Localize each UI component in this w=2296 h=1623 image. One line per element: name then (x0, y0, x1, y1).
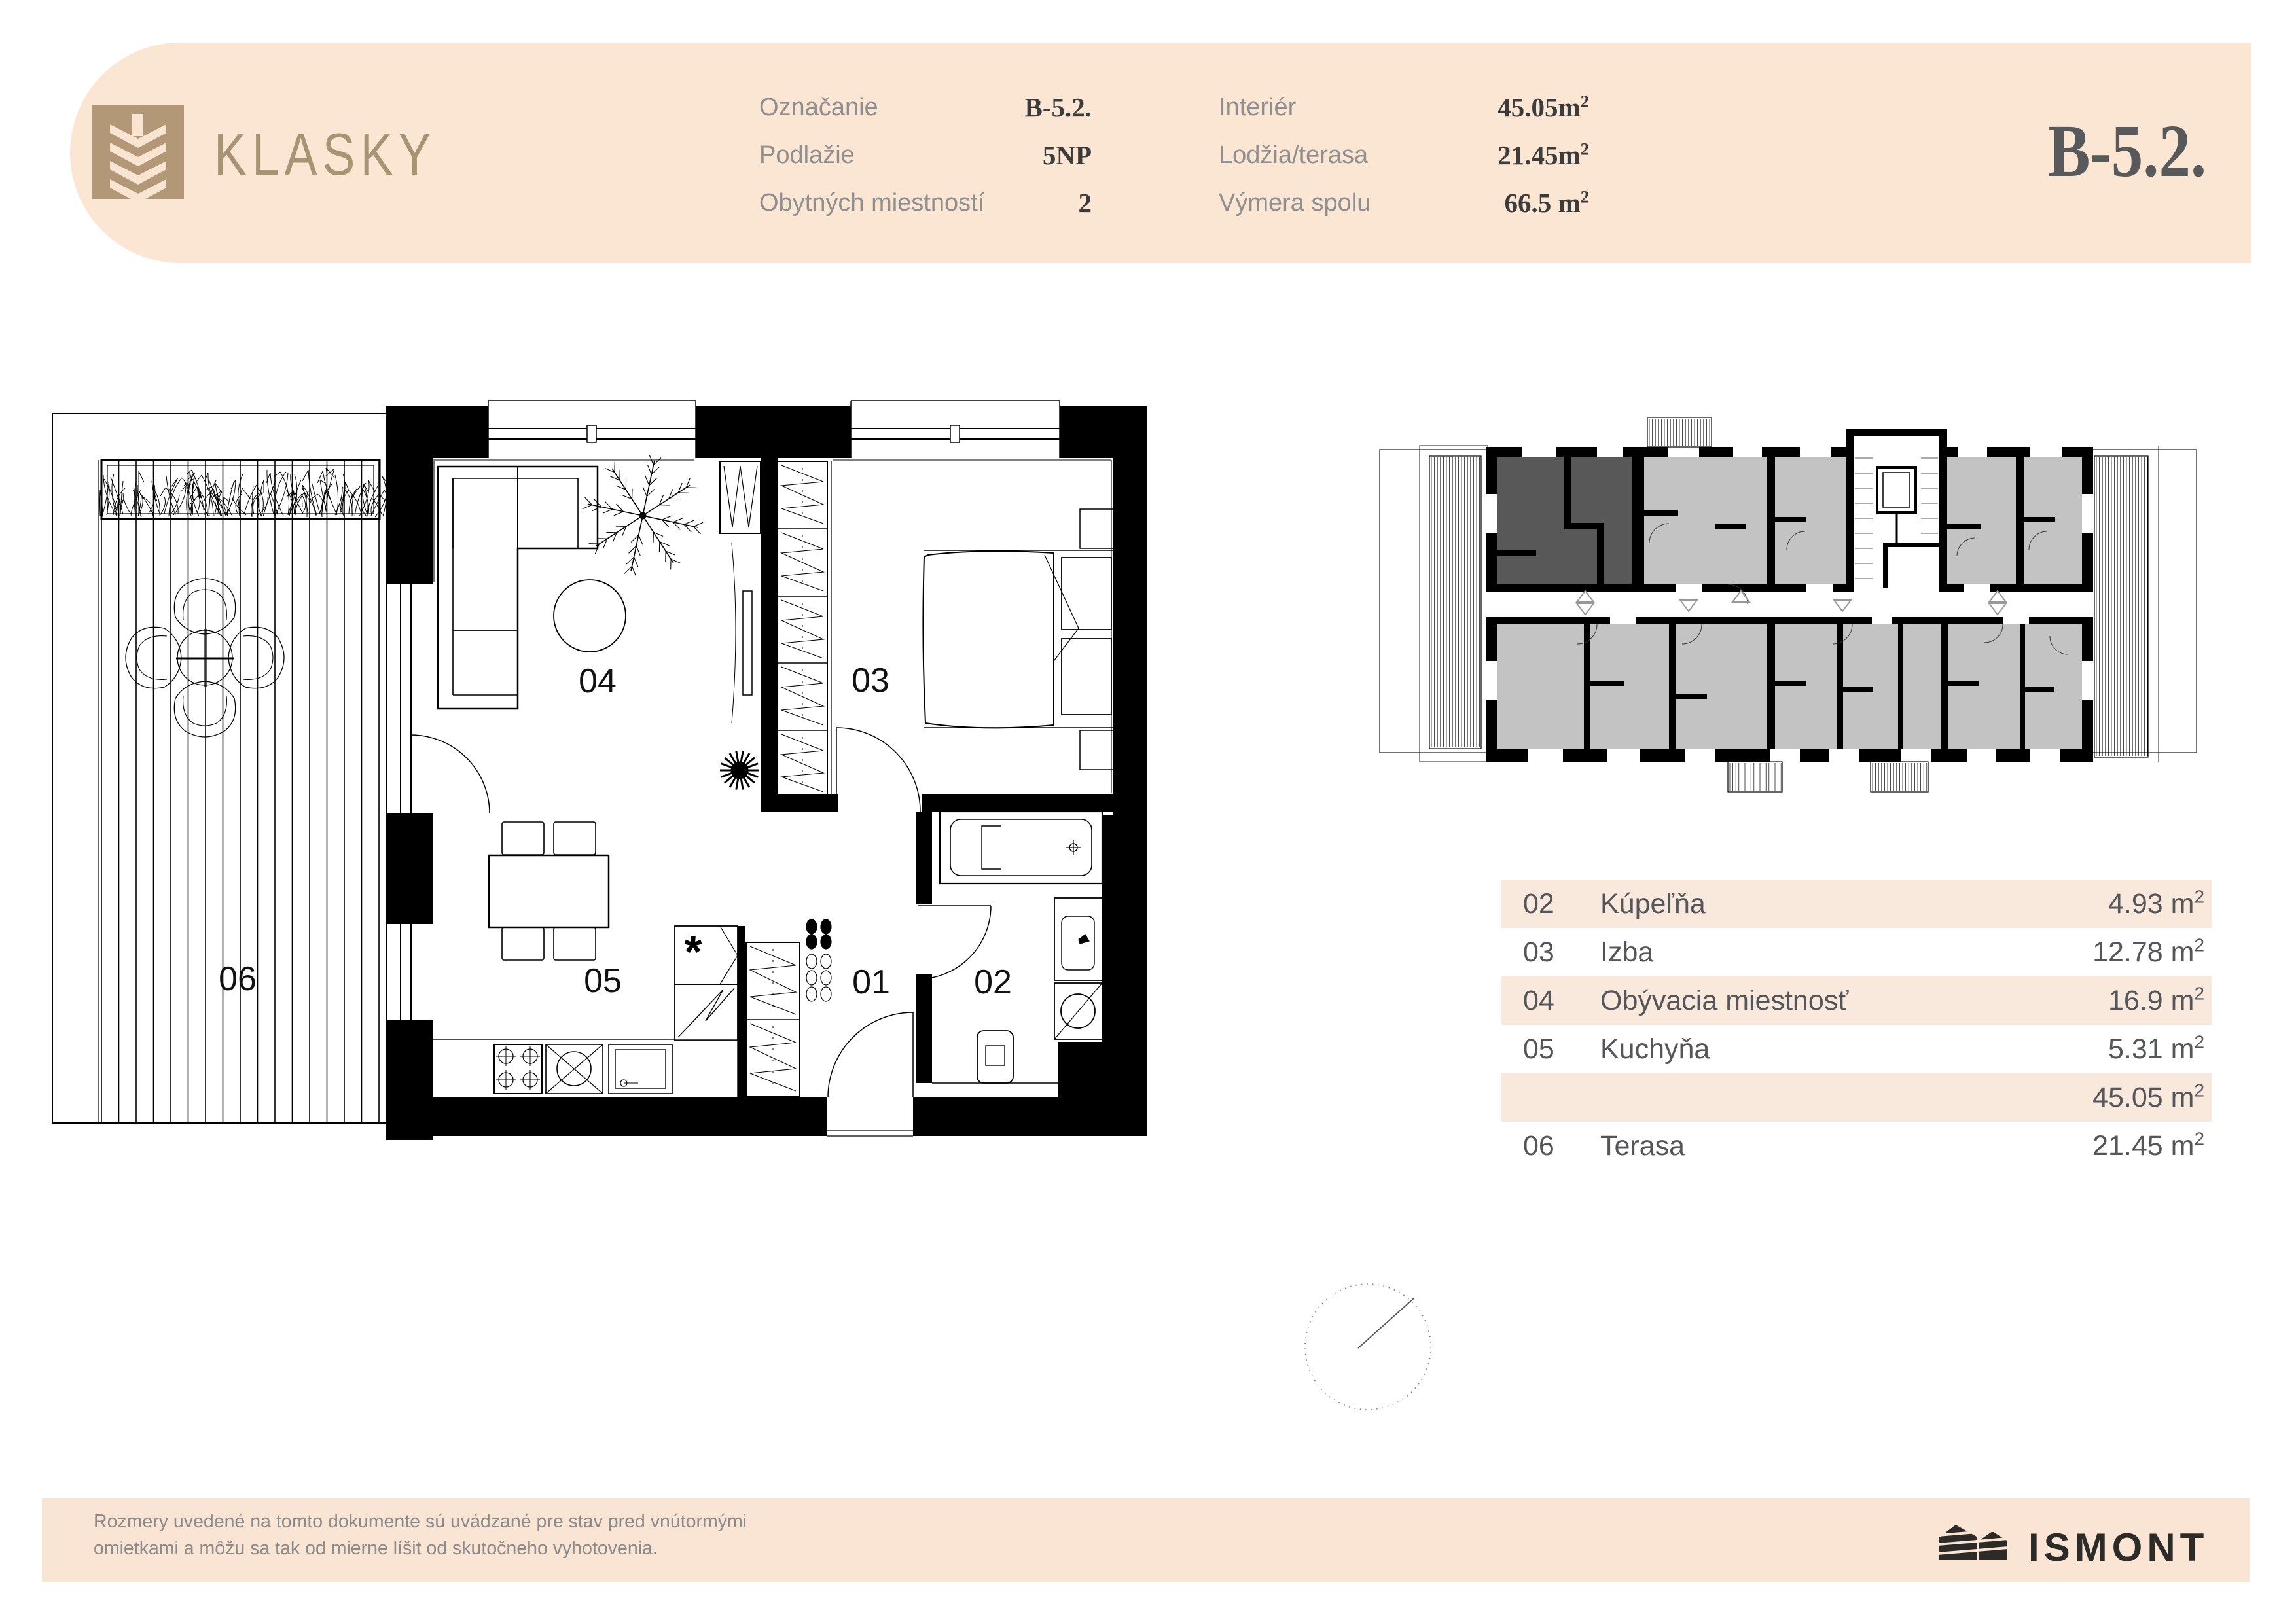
svg-text:04: 04 (579, 662, 617, 700)
svg-text:06: 06 (219, 960, 257, 998)
svg-text:01: 01 (852, 963, 890, 1001)
svg-text:*: * (684, 926, 702, 977)
svg-text:03: 03 (852, 662, 889, 700)
svg-text:02: 02 (974, 963, 1012, 1001)
svg-text:05: 05 (584, 962, 622, 1000)
